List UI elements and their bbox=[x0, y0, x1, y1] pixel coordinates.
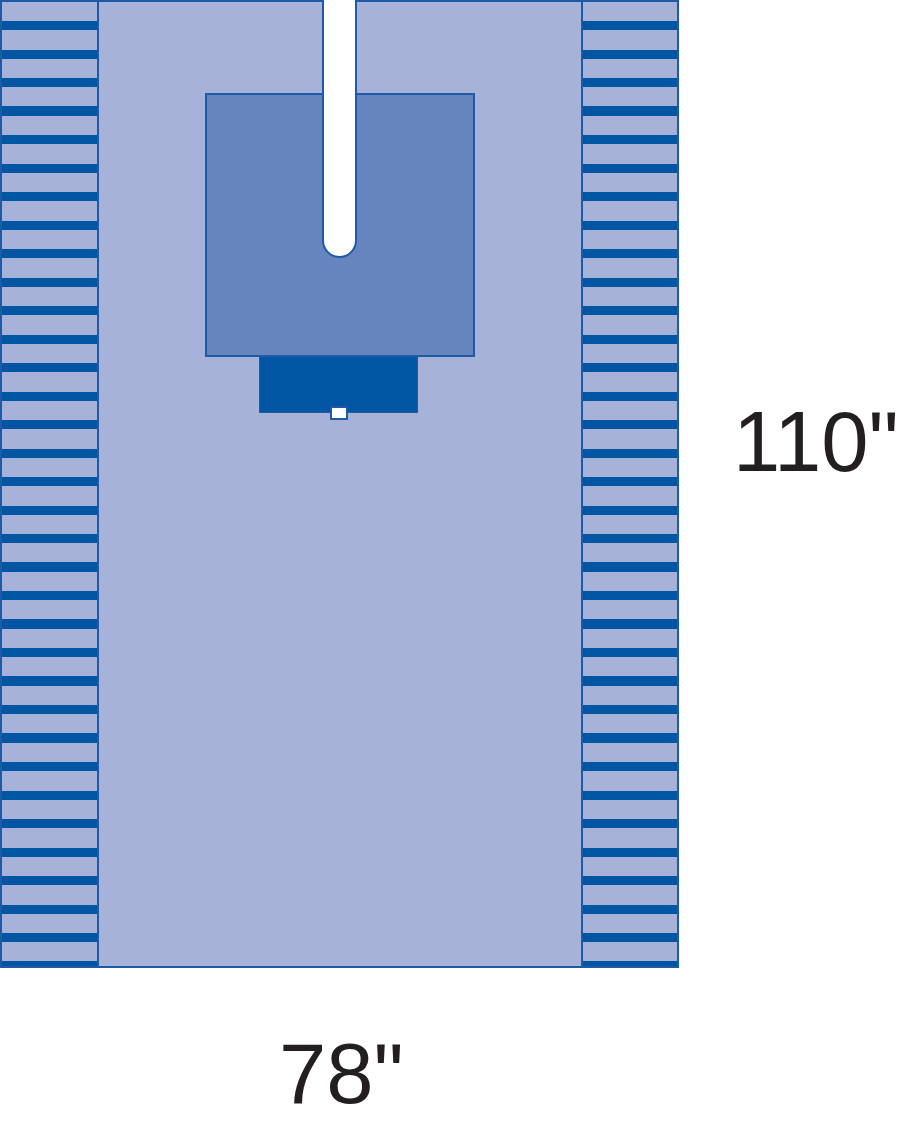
width-dimension-label: 78" bbox=[279, 1031, 404, 1116]
surgical-drape-diagram: 110" 78" bbox=[0, 0, 900, 1127]
height-dimension-label: 110" bbox=[733, 399, 899, 484]
fenestration-slot bbox=[322, 0, 357, 258]
pouch-drain-port bbox=[330, 406, 348, 420]
fluid-collection-pouch bbox=[259, 356, 418, 413]
right-fanfold-band bbox=[581, 0, 679, 968]
left-fanfold-band bbox=[0, 0, 99, 968]
